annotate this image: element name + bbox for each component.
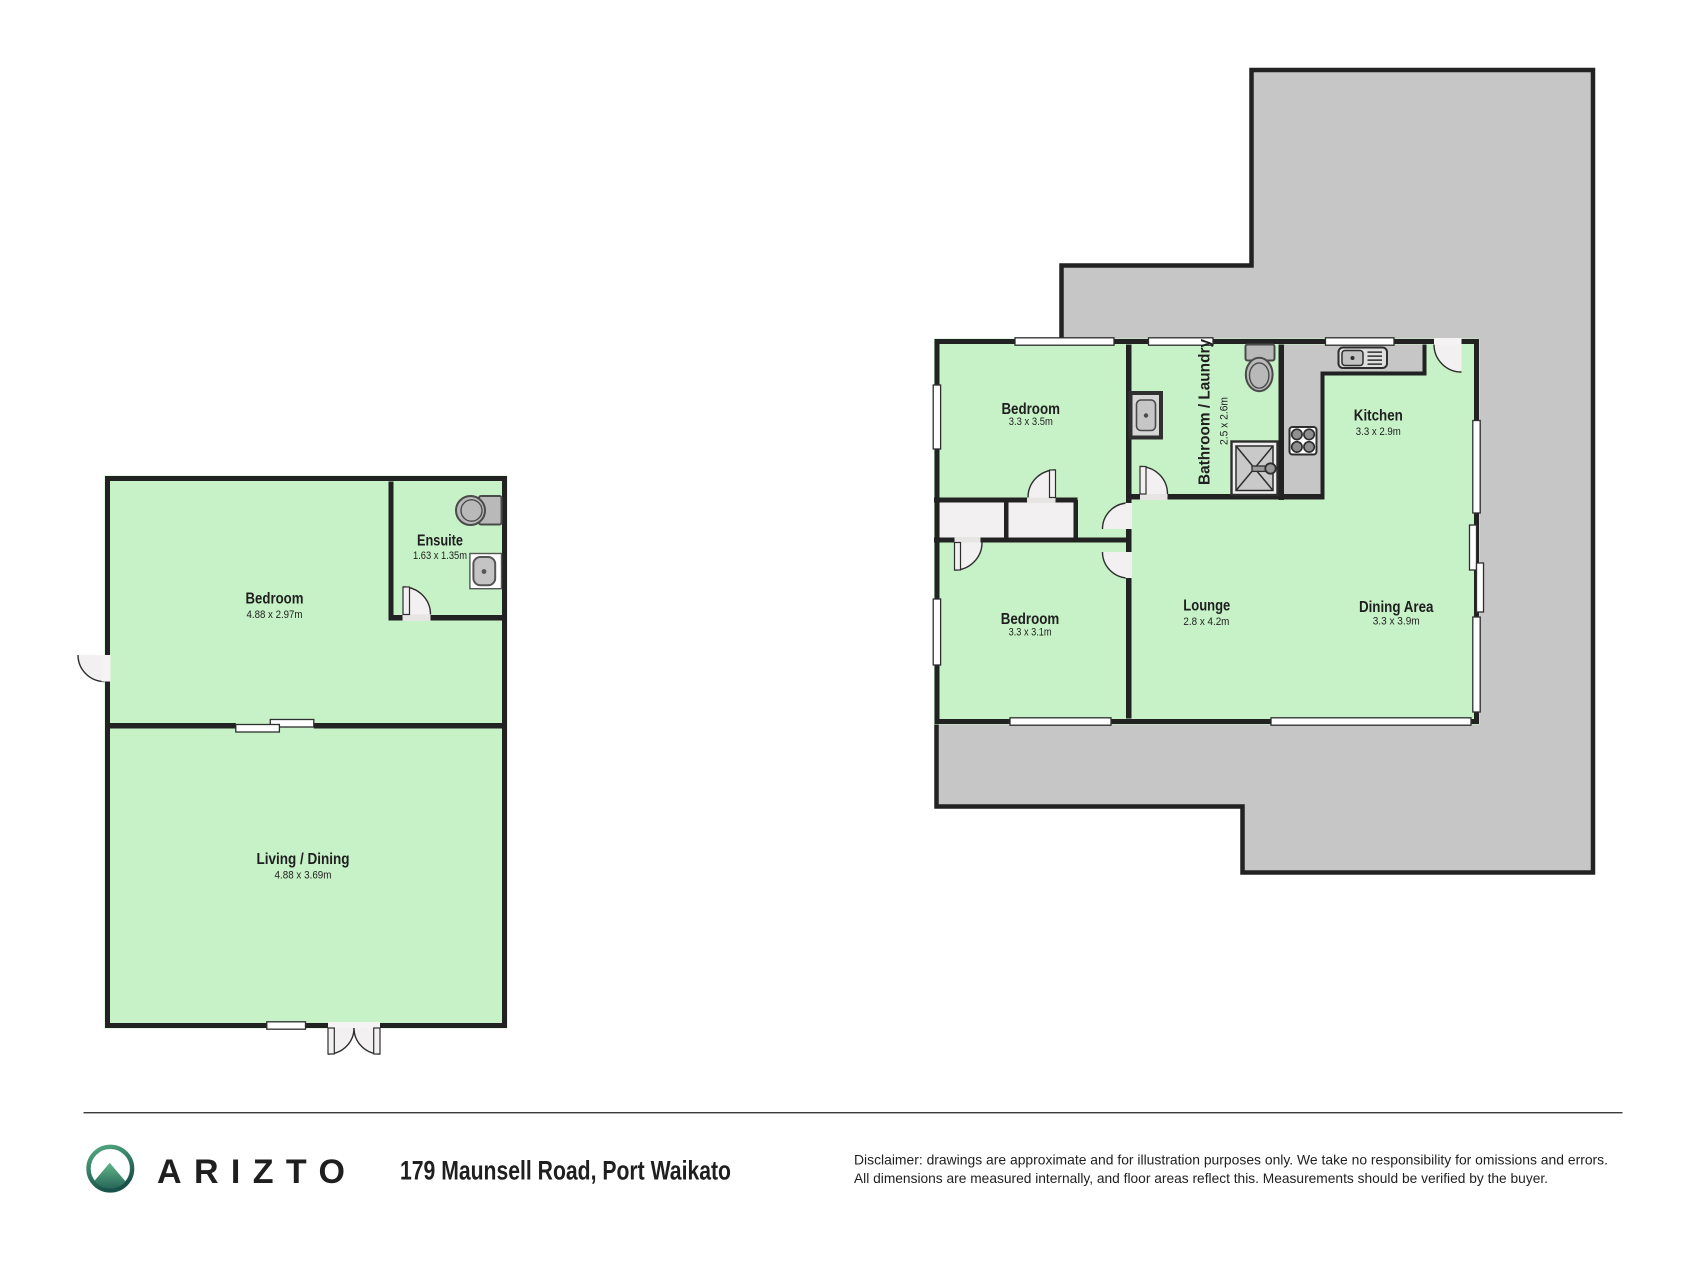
svg-text:3.3 x 3.9m: 3.3 x 3.9m: [1373, 616, 1420, 628]
svg-text:179 Maunsell Road, Port Waikat: 179 Maunsell Road, Port Waikato: [400, 1156, 731, 1186]
svg-text:3.3 x 3.5m: 3.3 x 3.5m: [1009, 416, 1053, 428]
svg-text:All dimensions are measured in: All dimensions are measured internally, …: [854, 1171, 1548, 1186]
svg-text:Lounge: Lounge: [1183, 598, 1230, 615]
svg-text:2.5 x 2.6m: 2.5 x 2.6m: [1219, 397, 1231, 445]
svg-text:ARIZTO: ARIZTO: [157, 1153, 357, 1191]
svg-text:1.63 x 1.35m: 1.63 x 1.35m: [413, 550, 467, 562]
svg-text:Living / Dining: Living / Dining: [257, 851, 350, 868]
svg-text:Kitchen: Kitchen: [1354, 408, 1403, 425]
svg-text:Disclaimer: drawings are appro: Disclaimer: drawings are approximate and…: [854, 1153, 1608, 1168]
svg-text:3.3 x 3.1m: 3.3 x 3.1m: [1009, 627, 1052, 639]
svg-text:Bathroom / Laundry: Bathroom / Laundry: [1197, 339, 1214, 485]
svg-text:Dining Area: Dining Area: [1359, 599, 1434, 616]
svg-text:Bedroom: Bedroom: [246, 591, 304, 608]
svg-text:Bedroom: Bedroom: [1001, 611, 1060, 628]
svg-text:3.3 x 2.9m: 3.3 x 2.9m: [1356, 426, 1401, 438]
svg-text:4.88 x 2.97m: 4.88 x 2.97m: [247, 609, 303, 621]
svg-text:2.8 x 4.2m: 2.8 x 4.2m: [1183, 616, 1229, 628]
svg-text:Ensuite: Ensuite: [417, 533, 463, 550]
svg-text:4.88 x 3.69m: 4.88 x 3.69m: [275, 870, 332, 882]
